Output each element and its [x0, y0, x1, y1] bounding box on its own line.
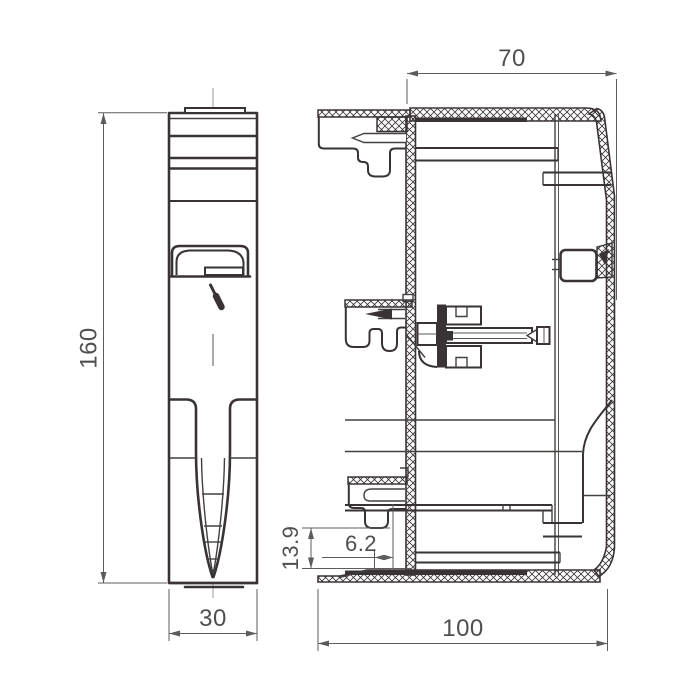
dimension-6-2: 6.2 [322, 504, 393, 568]
top-inner-bar [415, 118, 527, 123]
section-view [318, 108, 615, 582]
dimension-label-bottom-depth: 100 [442, 615, 484, 642]
dimension-label-hook-gap: 6.2 [345, 531, 377, 556]
lower-rail [345, 505, 582, 563]
dimension-label-hook-height: 13.9 [278, 526, 303, 571]
dimension-160: 160 [76, 113, 168, 583]
dimension-100: 100 [318, 589, 608, 651]
dimension-label-height: 160 [76, 327, 103, 369]
right-latch-block [552, 243, 612, 281]
latch-mechanism [418, 305, 550, 368]
top-rib-strip [185, 108, 245, 113]
left-wall-hatched [406, 116, 416, 575]
latch-rod [446, 327, 550, 344]
front-view [169, 88, 257, 598]
dimension-label-width: 30 [199, 605, 227, 632]
bottom-plate-hatched [318, 570, 600, 582]
technical-drawing: 160 30 70 100 [0, 0, 700, 700]
upper-ribs [415, 148, 611, 185]
bottom-bracket [348, 468, 408, 528]
top-bracket [318, 110, 410, 177]
latch-spring-bar [437, 305, 446, 368]
dimensions: 160 30 70 100 [76, 45, 617, 651]
latch-tab [205, 268, 243, 276]
right-wall-hatched [589, 109, 615, 577]
dimension-label-top-depth: 70 [498, 45, 526, 72]
